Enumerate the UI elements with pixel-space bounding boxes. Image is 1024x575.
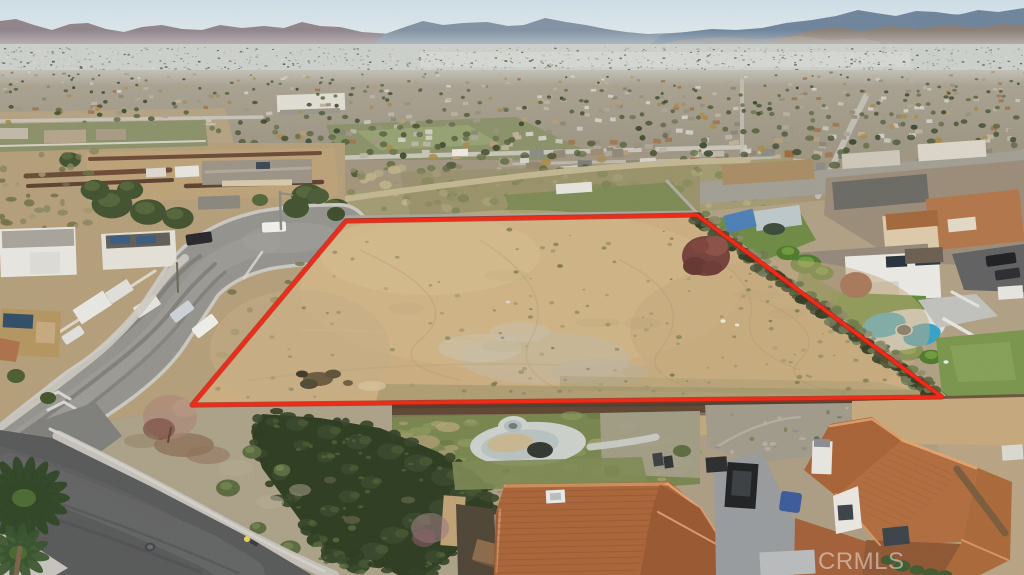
svg-text:CRMLS: CRMLS (818, 548, 905, 575)
